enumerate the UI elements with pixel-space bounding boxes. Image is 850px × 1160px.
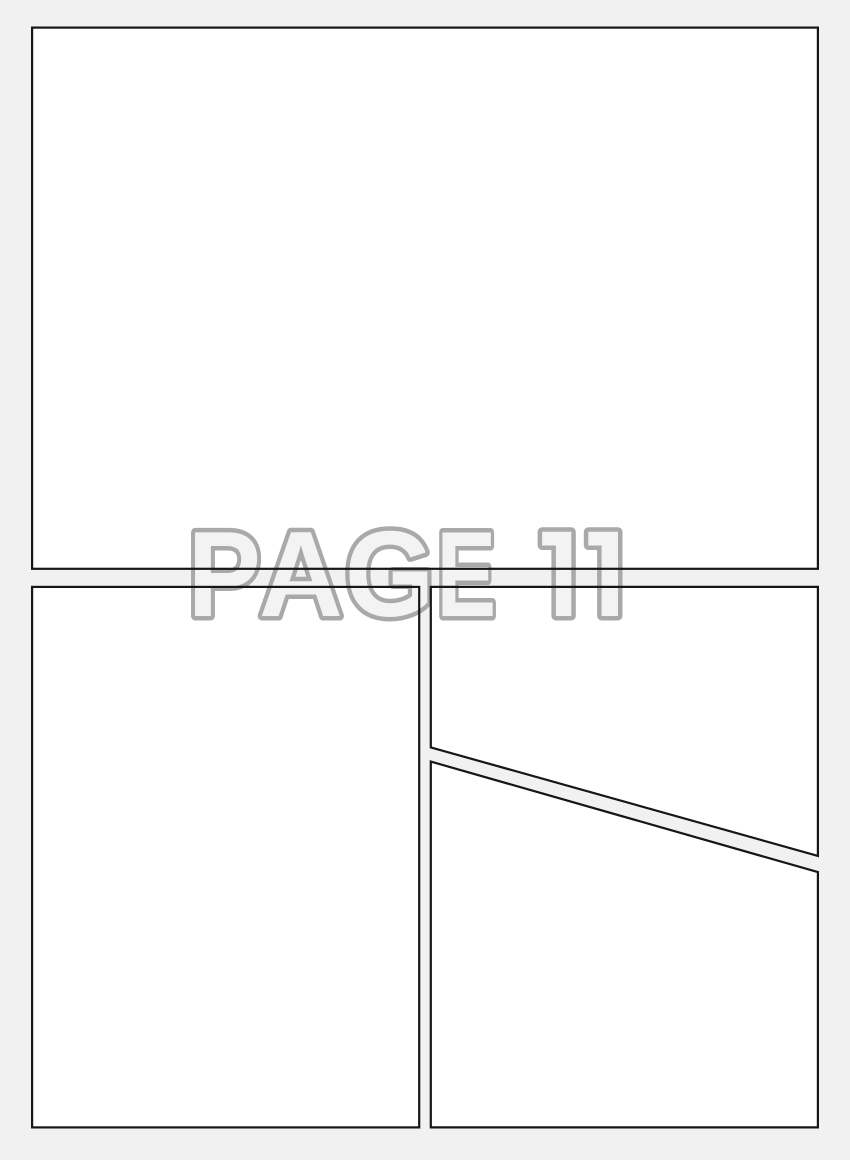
svg-text:A: A [259,506,343,642]
svg-text:P: P [188,506,261,642]
svg-text:G: G [345,506,435,642]
svg-text:E: E [437,506,497,642]
